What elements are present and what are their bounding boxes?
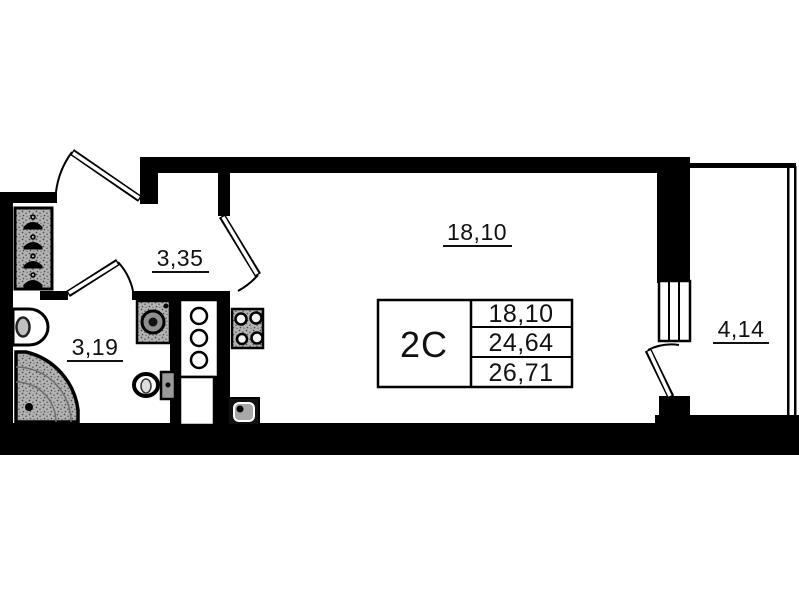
floor-plan-page: 18,10 3,35 3,19 4,14 2С 18,10 24,64 26,7… <box>0 0 799 600</box>
window-frame <box>659 281 690 341</box>
stove-icon <box>232 309 263 348</box>
entry-wall-step <box>140 157 158 204</box>
balcony-area-label: 4,14 <box>718 316 765 342</box>
top-wall <box>140 157 690 173</box>
balcony-right-wall-outer-line <box>794 166 797 418</box>
balcony-door-arc <box>648 344 679 350</box>
washing-machine-icon <box>137 301 170 343</box>
balcony-door-leaf-inner <box>649 351 670 396</box>
washer-knob <box>164 304 169 309</box>
shaft-circle-2 <box>191 330 207 346</box>
shower-tray <box>16 352 78 422</box>
burner <box>251 313 262 324</box>
bathroom-door-leaf-inner <box>69 263 117 293</box>
shaft-left-wall <box>170 298 180 427</box>
unit-info-table: 2С 18,10 24,64 26,71 <box>378 300 572 387</box>
shaft-circle-3 <box>191 352 207 368</box>
sink-basin <box>17 318 30 337</box>
left-wall <box>0 192 13 455</box>
bathroom-door-arc <box>118 262 133 291</box>
balcony-walls <box>690 163 797 418</box>
bathroom-area-label: 3,19 <box>72 334 119 360</box>
info-table-row-3: 26,71 <box>488 359 553 387</box>
kitchen-sink-faucet <box>237 406 244 413</box>
entrance-door-leaf-inner <box>73 153 139 198</box>
kitchen-sink-icon <box>228 398 259 425</box>
bathroom-wall-right-segment <box>132 291 230 300</box>
shower-drain <box>25 403 33 411</box>
kitchen-sink-basin <box>234 403 254 421</box>
unit-type-label: 2С <box>400 324 448 365</box>
toilet-tank-button <box>166 383 171 388</box>
balcony-door-stub <box>659 396 690 424</box>
info-table-row-2: 24,64 <box>488 329 553 357</box>
bathroom-wall-left-segment <box>40 291 68 300</box>
balcony-top-wall <box>690 163 796 168</box>
hallway-area-label: 3,35 <box>157 245 204 271</box>
living-room-area-label: 18,10 <box>447 219 507 245</box>
balcony-right-wall-inner-line <box>787 166 790 418</box>
balcony-window <box>659 281 690 341</box>
bottom-wall <box>0 423 690 455</box>
toilet-icon <box>134 372 175 399</box>
bathroom-sink-icon <box>13 309 48 345</box>
burner <box>237 334 247 344</box>
floor-plan-drawing: 18,10 3,35 3,19 4,14 2С 18,10 24,64 26,7… <box>0 0 799 600</box>
shaft-lower-box <box>180 377 214 425</box>
burner <box>252 333 263 344</box>
entrance-door-arc <box>56 152 72 192</box>
washer-door-center <box>149 318 158 327</box>
shower-icon <box>16 352 78 422</box>
right-pier <box>657 157 690 283</box>
hall-door-arc <box>238 275 258 291</box>
hall-door-leaf-inner <box>223 217 257 274</box>
burner <box>236 314 247 325</box>
wardrobe <box>15 208 52 289</box>
toilet-bowl-inner <box>141 379 151 393</box>
info-table-row-1: 18,10 <box>488 300 553 328</box>
shaft-circle-1 <box>191 308 207 324</box>
partition-upper <box>218 173 230 216</box>
utility-shaft <box>180 300 218 425</box>
